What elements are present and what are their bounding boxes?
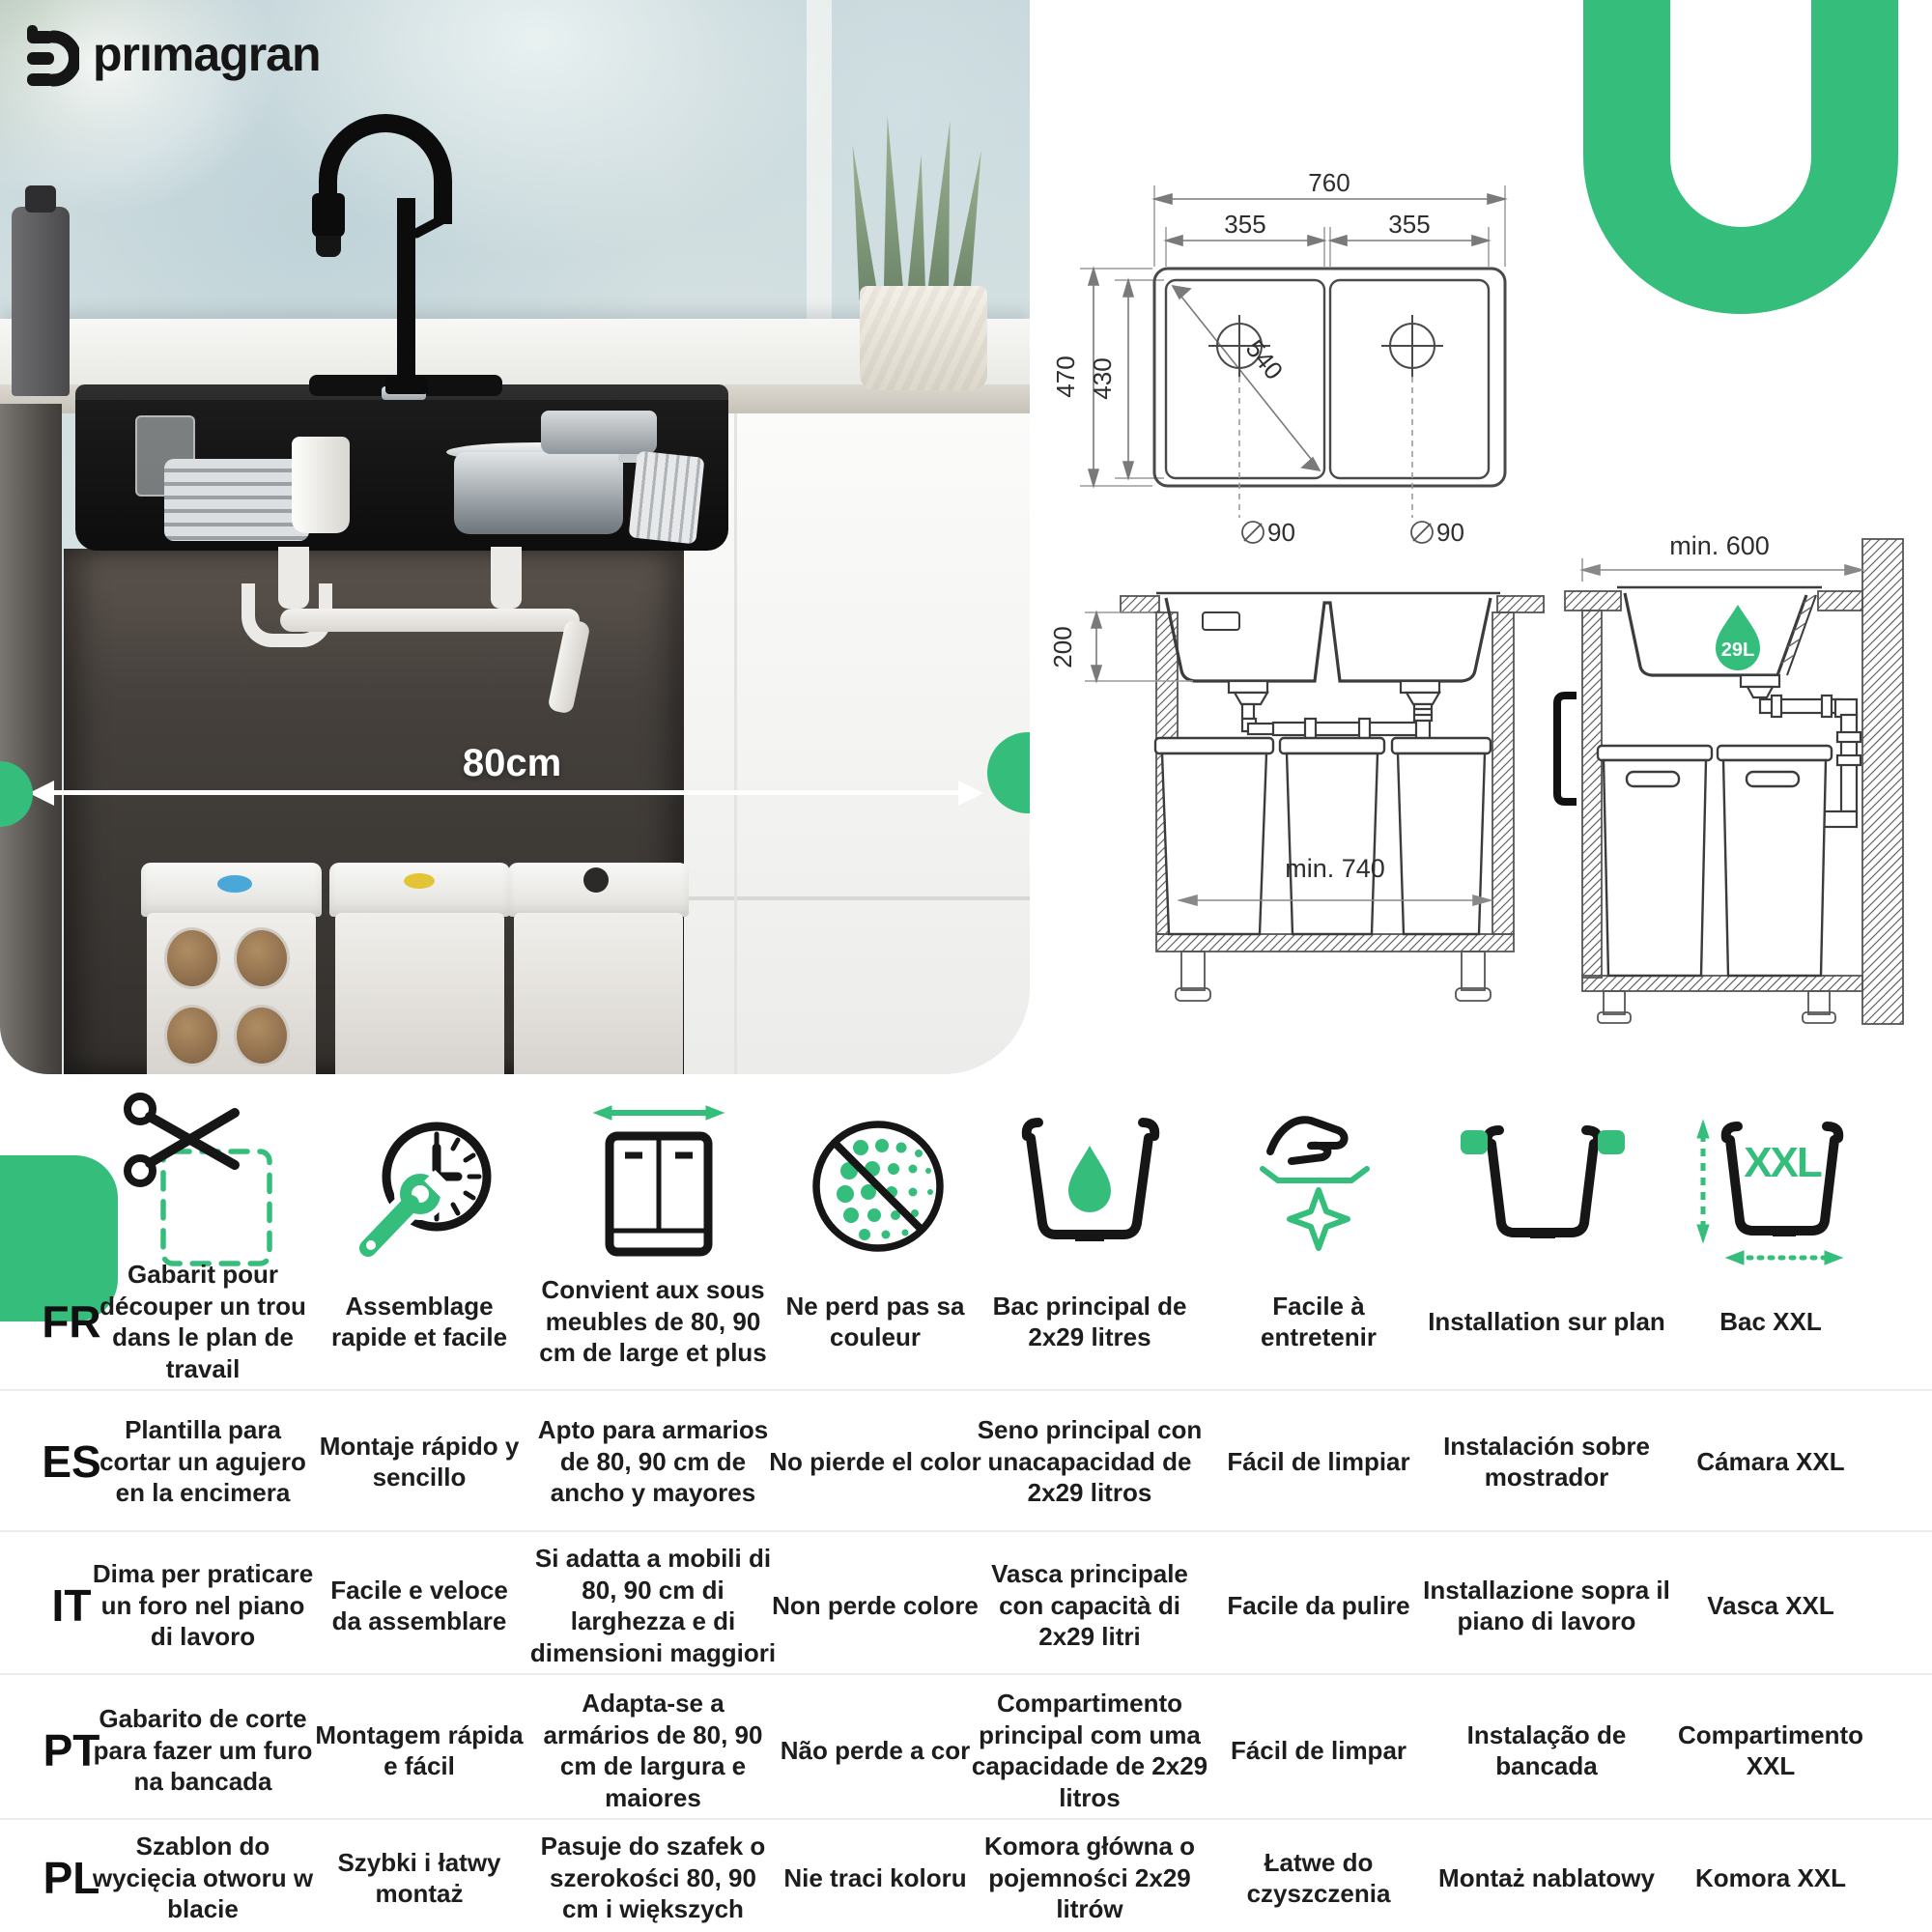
black-granite-sink [75,384,728,551]
drain-horizontal-pipe [280,609,580,632]
large-pot [454,452,623,534]
plant-pot [860,286,987,390]
bin-hole [234,927,290,989]
feature-row-es: ES Plantilla para cortar un agujero en l… [0,1395,1932,1528]
plant-stem [874,116,908,300]
product-photo: 80cm prımagran [0,0,1030,1074]
cabinet-width-label: 80cm [415,742,609,785]
faucet-spray-head [312,193,345,238]
drain-tailpiece-right [491,547,522,609]
right-bowl [1330,280,1489,478]
door-handle [1557,696,1577,802]
leaning-plates [628,451,704,545]
saucepan [541,411,657,454]
brand-logo-icon [27,19,79,89]
dim-diagonal: 540 [1240,334,1290,385]
feature-row-it: IT Dima per praticare un foro nel piano … [0,1540,1932,1671]
width-arrow [35,790,978,795]
drain-centerlines [1239,377,1412,518]
front-section-drawing: min. 740 200 [1048,533,1589,1031]
bowl-height-arrow [1092,612,1101,681]
feature-cell: Compartimento principal com uma capacida… [971,1685,1208,1816]
feature-cell: Assemblage rapide et facile [315,1256,524,1387]
row-separator [0,1389,1932,1391]
easy-clean-icon [1237,1088,1402,1281]
feature-cell: Seno principal con unacapacidad de 2x29 … [971,1395,1208,1528]
feature-cell: Não perde a cor [769,1685,981,1816]
feature-cell: Vasca XXL [1658,1540,1884,1671]
dishwasher-side [0,404,62,1074]
feature-cell: Plantilla para cortar un agujero en la e… [92,1395,314,1528]
feature-cell: Montaje rápido y sencillo [315,1395,524,1528]
faucet-base [385,377,428,394]
feature-cell: Compartimento XXL [1658,1685,1884,1816]
waste-bin-lid [329,863,510,917]
soap-bottle [12,207,70,396]
feature-cell: Nie traci koloru [769,1826,981,1930]
feature-cell: Bac XXL [1658,1256,1884,1387]
feature-cell: Fácil de limpiar [1215,1395,1422,1528]
feature-cell: Cámara XXL [1658,1395,1884,1528]
feature-cell: Facile e veloce da assemblare [315,1540,524,1671]
plant-stem [840,144,882,300]
wall-hatch [1862,539,1903,1024]
dim-left-bowl-width: 355 [1224,210,1265,239]
rosemary-plant [831,114,1024,396]
surface-tray [1263,1169,1367,1180]
feature-row-pl: PL Szablon do wycięcia otworu w blacie S… [0,1826,1932,1930]
main-bowl-capacity-icon [1008,1088,1172,1281]
left-bowl [1166,280,1324,478]
bin-hole [164,927,220,989]
waste-bin [514,913,683,1074]
infographic-canvas: 80cm prımagran [0,0,1932,1932]
top-view-drawing: 760 355 355 470 430 540 90 90 [1053,124,1517,560]
feature-cell: Convient aux sous meubles de 80, 90 cm d… [529,1256,777,1387]
xxl-bowl-icon: XXL [1688,1088,1852,1281]
faucet-stem [397,198,415,389]
dim-bowl-depth: 430 [1088,357,1117,399]
plant-stem [948,149,993,300]
feature-cell: Facile da pulire [1215,1540,1422,1671]
feature-cell: Instalação de bancada [1418,1685,1675,1816]
cabinet-door-gap [734,413,737,1074]
quick-assembly-icon [337,1088,501,1281]
yellow-lid-sticker [404,873,435,889]
feature-cell: Non perde colore [769,1540,981,1671]
plate-stack [164,459,309,541]
feature-cell: Instalación sobre mostrador [1418,1395,1675,1528]
bin-hole [234,1005,290,1066]
feature-cell: Si adatta a mobili di 80, 90 cm di largh… [529,1540,777,1671]
extension-lines [1080,185,1505,486]
feature-cell: Szybki i łatwy montaż [315,1826,524,1930]
feature-cell: Installazione sopra il piano di lavoro [1418,1540,1675,1671]
sparkle [1290,1190,1348,1248]
cabinet-panel-hatch [1582,611,1602,978]
bin-hole [164,1005,220,1066]
waste-bin [335,913,504,1074]
feature-row-pt: PT Gabarito de corte para fazer um furo … [0,1685,1932,1816]
cutout-template-icon [121,1088,285,1281]
feature-cell: Gabarit pour découper un trou dans le pl… [92,1256,314,1387]
hand-shape [1270,1120,1345,1161]
feature-cell: Adapta-se a armários de 80, 90 cm de lar… [529,1685,777,1816]
side-section-drawing: 29L min. 600 [1536,522,1932,1034]
feature-cell: Pasuje do szafek o szerokości 80, 90 cm … [529,1826,777,1930]
feature-row-fr: FR Gabarit pour découper un trou dans le… [0,1256,1932,1387]
colorfast-icon [793,1088,957,1281]
brand-u-mark [1583,0,1898,314]
window-frame [807,0,832,324]
feature-cell: Montaż nablatowy [1418,1826,1675,1930]
drain-pipes [1229,681,1439,742]
waste-bins [1155,738,1491,934]
feature-cell: No pierde el color [769,1395,981,1528]
faucet-holes [1208,315,1443,377]
dim-bowl-height: 200 [1048,626,1077,668]
feature-cell: Vasca principale con capacità di 2x29 li… [971,1540,1208,1671]
dim-min-cabinet-depth: min. 600 [1669,531,1770,560]
dim-right-bowl-width: 355 [1388,210,1430,239]
bowl-cross-section [1617,587,1822,675]
min-depth-dimension [1582,558,1862,582]
counter-hatch-right [1818,591,1862,611]
dark-lid-hole [583,867,609,893]
feature-cell: Gabarito de corte para fazer um furo na … [92,1685,314,1816]
feature-cell: Fácil de limpar [1215,1685,1422,1816]
faucet-nozzle [316,236,341,257]
brand-logo: prımagran [27,19,321,89]
dimension-lines [1089,194,1505,486]
cabinet-bottom-hatch [1582,976,1862,991]
dim-min-interior-width: min. 740 [1285,854,1385,883]
feature-cell: Komora XXL [1658,1826,1884,1930]
row-separator [0,1530,1932,1532]
water-drop [1068,1146,1111,1212]
counter-hatch-left [1565,591,1621,611]
feature-cell: Bac principal de 2x29 litres [971,1256,1208,1387]
bottom-panel-hatch [1156,934,1514,952]
cabinet-width-icon [571,1088,735,1281]
feature-cell: Szablon do wycięcia otworu w blacie [92,1826,314,1930]
feature-cell: Dima per praticare un foro nel piano di … [92,1540,314,1671]
dim-total-depth: 470 [1053,355,1080,397]
row-separator [0,1673,1932,1675]
waste-bins [1598,746,1832,976]
dim-total-width: 760 [1308,168,1350,197]
feature-cell: Facile à entretenir [1215,1256,1422,1387]
feature-cell: Ne perd pas sa couleur [769,1256,981,1387]
feature-cell: Installation sur plan [1418,1256,1675,1387]
sink-cross-section [1156,593,1500,681]
row-separator [0,1818,1932,1820]
blue-lid-sticker [217,875,252,893]
feature-cell: Montagem rápida e fácil [315,1685,524,1816]
countertop-installation-icon [1461,1088,1625,1281]
soap-bottle-cap [25,185,56,213]
right-wall-hatch [1492,612,1514,934]
capacity-badge-label: 29L [1721,639,1754,661]
feature-cell: Komora główna o pojemności 2x29 litrów [971,1826,1208,1930]
plant-stem [903,155,933,300]
brand-logo-text: prımagran [93,26,321,82]
feature-cell: Apto para armarios de 80, 90 cm de ancho… [529,1395,777,1528]
feature-cell: Łatwe do czyszczenia [1215,1826,1422,1930]
countertop-hatch-left [1121,596,1159,612]
white-mug [292,437,350,533]
xxl-label: XXL [1744,1139,1822,1186]
